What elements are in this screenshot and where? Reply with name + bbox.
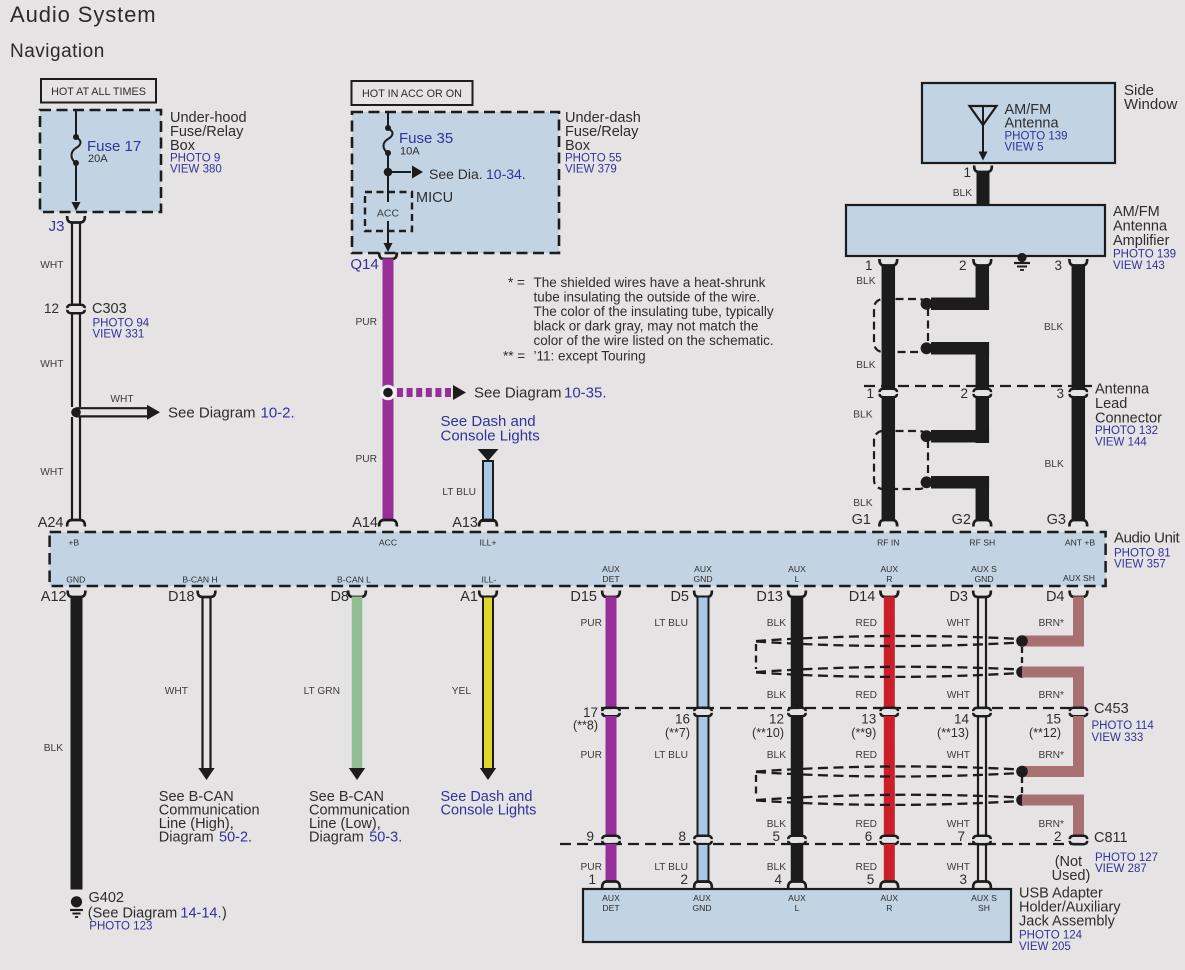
svg-text:Q14: Q14: [350, 256, 378, 273]
svg-text:GND: GND: [66, 575, 85, 585]
svg-text:BLK: BLK: [853, 498, 872, 509]
svg-text:WHT: WHT: [947, 750, 970, 761]
svg-text:D8: D8: [330, 589, 349, 605]
svg-text:PHOTO 124: PHOTO 124: [1019, 930, 1083, 942]
svg-text:HOT AT ALL TIMES: HOT AT ALL TIMES: [51, 86, 146, 98]
svg-text:AUX: AUX: [602, 893, 620, 903]
svg-text:GND: GND: [974, 574, 993, 584]
svg-text:A14: A14: [352, 515, 378, 531]
svg-text:5: 5: [867, 872, 875, 887]
svg-text:D14: D14: [849, 589, 876, 605]
svg-text:1: 1: [865, 258, 873, 273]
svg-text:+B: +B: [68, 538, 79, 548]
svg-text:LT BLU: LT BLU: [442, 487, 476, 498]
svg-text:VIEW 379: VIEW 379: [565, 164, 617, 176]
svg-text:(**13): (**13): [937, 726, 969, 740]
svg-text:J3: J3: [49, 218, 65, 235]
svg-text:5: 5: [772, 829, 780, 844]
svg-text:20A: 20A: [88, 153, 108, 165]
svg-text:G2: G2: [952, 512, 971, 528]
svg-text:D18: D18: [168, 589, 195, 605]
svg-text:DET: DET: [602, 574, 620, 584]
svg-text:6: 6: [865, 829, 873, 844]
svg-text:Console Lights: Console Lights: [441, 428, 540, 445]
svg-text:AUX: AUX: [602, 564, 620, 574]
svg-text:D5: D5: [670, 589, 689, 605]
svg-text:2: 2: [959, 258, 967, 273]
svg-text:VIEW 5: VIEW 5: [1005, 142, 1044, 154]
svg-text:YEL: YEL: [452, 686, 472, 697]
svg-text:DET: DET: [602, 903, 620, 913]
svg-text:12: 12: [44, 301, 59, 316]
svg-text:D13: D13: [756, 589, 783, 605]
svg-text:ILL-: ILL-: [481, 575, 496, 585]
svg-text:3: 3: [959, 872, 967, 887]
svg-text:RF IN: RF IN: [877, 538, 899, 548]
svg-text:LT BLU: LT BLU: [654, 750, 688, 761]
svg-text:Diagram: Diagram: [309, 830, 364, 846]
svg-text:The shielded wires have a heat: The shielded wires have a heat-shrunk: [534, 275, 766, 290]
svg-text:PUR: PUR: [580, 618, 602, 629]
svg-text:WHT: WHT: [40, 467, 63, 478]
svg-text:L: L: [795, 574, 800, 584]
svg-text:AUX SH: AUX SH: [1063, 573, 1095, 583]
svg-text:14: 14: [954, 712, 970, 727]
svg-text:): ): [222, 906, 227, 922]
svg-text:BRN*: BRN*: [1039, 750, 1065, 761]
svg-text:WHT: WHT: [40, 260, 63, 271]
svg-text:SH: SH: [978, 903, 990, 913]
svg-text:PUR: PUR: [580, 750, 602, 761]
svg-text:RED: RED: [855, 690, 877, 701]
svg-text:Diagram: Diagram: [159, 830, 214, 846]
svg-text:AUX: AUX: [880, 893, 898, 903]
svg-text:A1: A1: [460, 589, 478, 605]
svg-text:See Diagram: See Diagram: [168, 405, 256, 422]
svg-text:RED: RED: [855, 750, 877, 761]
svg-text:Fuse 35: Fuse 35: [399, 130, 453, 147]
svg-text:BLK: BLK: [44, 743, 63, 754]
svg-text:VIEW 357: VIEW 357: [1114, 559, 1166, 571]
svg-text:GND: GND: [692, 903, 711, 913]
svg-text:AUX: AUX: [694, 564, 712, 574]
svg-text:Navigation: Navigation: [10, 41, 105, 62]
svg-text:C453: C453: [1094, 701, 1129, 717]
svg-text:9: 9: [586, 829, 594, 844]
svg-text:black or dark gray, may not ma: black or dark gray, may not match the: [534, 319, 759, 334]
svg-text:2: 2: [680, 872, 688, 887]
svg-text:MICU: MICU: [416, 190, 453, 206]
svg-text:VIEW 144: VIEW 144: [1095, 437, 1147, 449]
svg-text:RF SH: RF SH: [969, 538, 995, 548]
svg-text:VIEW 143: VIEW 143: [1113, 260, 1165, 272]
svg-text:See Diagram: See Diagram: [474, 385, 562, 402]
svg-text:AUX: AUX: [788, 564, 806, 574]
svg-text:BLK: BLK: [953, 188, 972, 199]
svg-text:The color of the insulating tu: The color of the insulating tube, typica…: [534, 304, 774, 319]
svg-text:PHOTO 123: PHOTO 123: [89, 921, 152, 933]
svg-text:Antenna: Antenna: [1005, 116, 1060, 132]
svg-text:(**9): (**9): [851, 726, 876, 740]
svg-text:tube insulating the outside of: tube insulating the outside of the wire.: [534, 290, 761, 305]
svg-text:WHT: WHT: [40, 359, 63, 370]
svg-text:D3: D3: [949, 589, 968, 605]
svg-text:ACC: ACC: [377, 208, 400, 220]
svg-text:GND: GND: [693, 574, 712, 584]
svg-text:AUX: AUX: [880, 564, 898, 574]
svg-text:BLK: BLK: [856, 276, 875, 287]
svg-text:(**7): (**7): [665, 726, 690, 740]
svg-text:See Dia.: See Dia.: [429, 166, 483, 182]
svg-text:VIEW 380: VIEW 380: [170, 164, 222, 176]
svg-text:’11: except Touring: ’11: except Touring: [534, 349, 646, 364]
svg-text:BLK: BLK: [853, 410, 872, 421]
svg-text:L: L: [795, 903, 800, 913]
svg-text:VIEW 331: VIEW 331: [93, 329, 145, 341]
svg-text:D4: D4: [1046, 589, 1065, 605]
svg-text:10-34.: 10-34.: [486, 166, 526, 182]
svg-text:AUX S: AUX S: [971, 564, 997, 574]
svg-text:R: R: [886, 903, 892, 913]
svg-text:3: 3: [1054, 258, 1062, 273]
svg-text:ANT +B: ANT +B: [1065, 538, 1095, 548]
svg-text:BRN*: BRN*: [1039, 690, 1065, 701]
svg-text:B-CAN L: B-CAN L: [337, 575, 371, 585]
svg-text:WHT: WHT: [947, 690, 970, 701]
svg-text:50-3.: 50-3.: [369, 830, 402, 846]
svg-text:BLK: BLK: [767, 618, 786, 629]
svg-text:(**10): (**10): [752, 726, 784, 740]
svg-text:LT BLU: LT BLU: [654, 618, 688, 629]
svg-text:Amplifier: Amplifier: [1113, 233, 1170, 249]
svg-text:color of the wire listed on th: color of the wire listed on the schemati…: [534, 333, 774, 348]
svg-text:PUR: PUR: [355, 454, 377, 465]
svg-text:WHT: WHT: [110, 394, 133, 405]
svg-text:15: 15: [1046, 712, 1061, 727]
svg-text:10-35.: 10-35.: [564, 385, 607, 402]
svg-text:PHOTO 114: PHOTO 114: [1092, 720, 1155, 732]
svg-text:Window: Window: [1124, 96, 1178, 113]
svg-text:LT GRN: LT GRN: [304, 686, 340, 697]
svg-text:ILL+: ILL+: [480, 538, 497, 548]
svg-text:10-2.: 10-2.: [261, 405, 295, 422]
svg-text:B-CAN H: B-CAN H: [182, 575, 217, 585]
svg-text:G402: G402: [89, 890, 124, 906]
svg-text:Console Lights: Console Lights: [441, 803, 537, 819]
svg-text:4: 4: [774, 872, 782, 887]
svg-text:1: 1: [866, 386, 874, 401]
svg-text:A12: A12: [41, 589, 67, 605]
svg-text:AUX: AUX: [693, 893, 711, 903]
svg-text:8: 8: [678, 829, 686, 844]
svg-text:2: 2: [960, 386, 968, 401]
svg-text:HOT IN ACC OR ON: HOT IN ACC OR ON: [362, 88, 462, 100]
svg-text:D15: D15: [570, 589, 597, 605]
svg-text:PUR: PUR: [355, 317, 377, 328]
svg-text:AUX S: AUX S: [971, 893, 997, 903]
svg-text:A24: A24: [38, 515, 64, 531]
svg-text:Jack Assembly: Jack Assembly: [1019, 914, 1116, 930]
svg-text:16: 16: [675, 712, 690, 727]
svg-text:7: 7: [957, 829, 965, 844]
svg-text:Audio System: Audio System: [10, 2, 157, 27]
svg-text:A13: A13: [452, 515, 478, 531]
svg-text:BLK: BLK: [1045, 459, 1064, 470]
svg-text:BRN*: BRN*: [1039, 618, 1065, 629]
svg-text:WHT: WHT: [165, 686, 188, 697]
svg-text:(See Diagram: (See Diagram: [88, 906, 177, 922]
svg-text:C811: C811: [1094, 830, 1128, 846]
svg-text:3: 3: [1056, 386, 1064, 401]
svg-text:Audio Unit: Audio Unit: [1114, 530, 1180, 547]
svg-text:(**8): (**8): [573, 719, 598, 733]
svg-text:G3: G3: [1047, 512, 1066, 528]
svg-text:* =: * =: [508, 275, 525, 290]
svg-text:ACC: ACC: [379, 538, 397, 548]
svg-text:12: 12: [769, 712, 784, 727]
svg-text:13: 13: [861, 712, 876, 727]
svg-text:50-2.: 50-2.: [219, 830, 252, 846]
svg-text:BLK: BLK: [767, 690, 786, 701]
svg-text:BLK: BLK: [767, 750, 786, 761]
svg-text:14-14.: 14-14.: [180, 906, 221, 922]
svg-text:PHOTO 132: PHOTO 132: [1095, 425, 1158, 437]
svg-text:BLK: BLK: [856, 360, 875, 371]
svg-text:VIEW 333: VIEW 333: [1092, 732, 1144, 744]
svg-text:VIEW 205: VIEW 205: [1019, 941, 1071, 953]
svg-text:VIEW 287: VIEW 287: [1095, 863, 1147, 875]
svg-text:** =: ** =: [503, 349, 525, 364]
svg-text:2: 2: [1054, 829, 1062, 844]
svg-text:10A: 10A: [400, 146, 420, 158]
svg-text:G1: G1: [852, 512, 871, 528]
svg-text:AUX: AUX: [788, 893, 806, 903]
svg-text:R: R: [886, 574, 892, 584]
svg-text:RED: RED: [855, 618, 877, 629]
svg-text:Used): Used): [1052, 868, 1091, 884]
svg-text:PHOTO 139: PHOTO 139: [1113, 249, 1176, 261]
svg-text:1: 1: [588, 872, 596, 887]
svg-text:BLK: BLK: [1044, 322, 1063, 333]
svg-text:(**12): (**12): [1029, 726, 1061, 740]
svg-text:WHT: WHT: [947, 618, 970, 629]
svg-text:C303: C303: [92, 301, 127, 317]
svg-text:1: 1: [963, 165, 971, 180]
